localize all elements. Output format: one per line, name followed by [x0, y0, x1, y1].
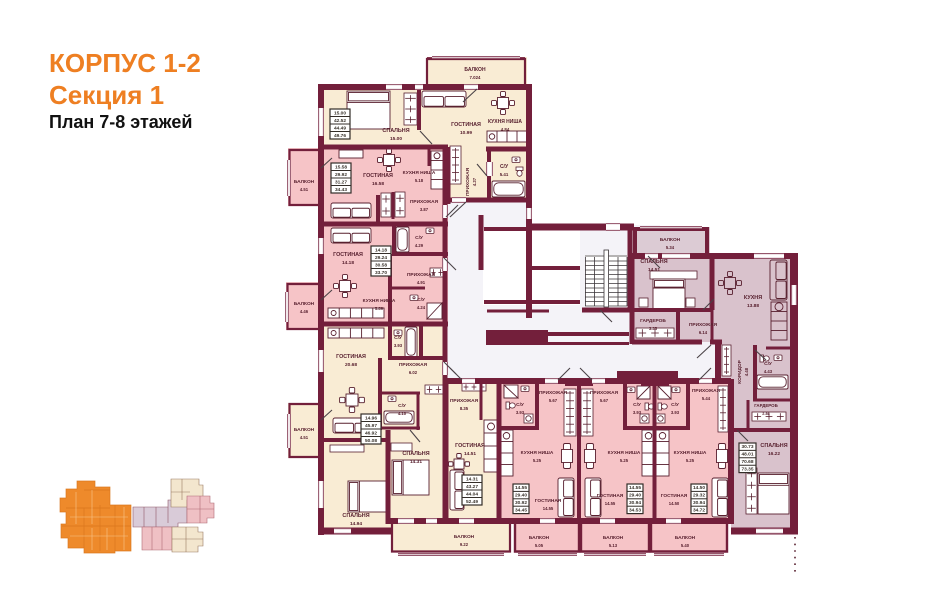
svg-text:5.67: 5.67: [549, 398, 558, 403]
svg-text:4.48: 4.48: [744, 367, 749, 376]
svg-text:30.73: 30.73: [741, 444, 753, 450]
svg-text:14.55: 14.55: [543, 506, 554, 511]
svg-text:КУХНЯ НИША: КУХНЯ НИША: [363, 298, 396, 304]
svg-text:14.31: 14.31: [466, 476, 478, 482]
svg-text:4.91: 4.91: [417, 280, 426, 285]
svg-text:5.41: 5.41: [500, 172, 509, 177]
svg-text:ГАРДЕРОБ: ГАРДЕРОБ: [754, 403, 778, 408]
svg-text:49.76: 49.76: [334, 133, 346, 139]
svg-text:14.55: 14.55: [515, 485, 527, 491]
svg-text:14.18: 14.18: [375, 247, 387, 253]
svg-text:5.25: 5.25: [533, 458, 542, 463]
svg-text:5.18: 5.18: [415, 178, 424, 183]
svg-text:3.93: 3.93: [633, 410, 642, 415]
svg-text:34.53: 34.53: [629, 507, 641, 513]
svg-text:ПРИХОЖАЯ: ПРИХОЖАЯ: [410, 199, 439, 205]
svg-text:13.88: 13.88: [747, 303, 759, 309]
svg-text:БАЛКОН: БАЛКОН: [294, 427, 315, 433]
svg-text:ПРИХОЖАЯ: ПРИХОЖАЯ: [407, 272, 436, 278]
svg-text:5.05: 5.05: [535, 543, 544, 548]
svg-text:С/У: С/У: [516, 402, 525, 408]
svg-text:34.43: 34.43: [335, 187, 347, 193]
svg-text:45.97: 45.97: [365, 423, 377, 429]
svg-text:43.27: 43.27: [466, 484, 478, 490]
svg-text:СПАЛЬНЯ: СПАЛЬНЯ: [382, 128, 409, 134]
svg-text:29.40: 29.40: [629, 493, 641, 499]
svg-text:БАЛКОН: БАЛКОН: [675, 535, 696, 541]
svg-text:4.43: 4.43: [764, 369, 773, 374]
svg-text:4.29: 4.29: [415, 243, 424, 248]
svg-text:3.35: 3.35: [649, 326, 658, 331]
svg-text:8.35: 8.35: [460, 406, 469, 411]
svg-text:7.024: 7.024: [470, 75, 482, 80]
svg-text:ПРИХОЖАЯ: ПРИХОЖАЯ: [539, 390, 568, 396]
svg-text:КУХНЯ НИША: КУХНЯ НИША: [674, 450, 707, 456]
svg-text:70.68: 70.68: [741, 459, 753, 465]
svg-text:КУХНЯ НИША: КУХНЯ НИША: [488, 119, 522, 125]
svg-text:ГОСТИНАЯ: ГОСТИНАЯ: [363, 173, 393, 179]
svg-text:14.55: 14.55: [605, 501, 616, 506]
svg-text:44.49: 44.49: [334, 125, 346, 131]
svg-text:16.22: 16.22: [768, 451, 780, 457]
svg-text:3.93: 3.93: [516, 410, 525, 415]
svg-text:СПАЛЬНЯ: СПАЛЬНЯ: [640, 259, 667, 265]
svg-text:50.08: 50.08: [365, 438, 377, 444]
svg-text:10.99: 10.99: [460, 130, 472, 136]
svg-text:СПАЛЬНЯ: СПАЛЬНЯ: [760, 443, 787, 449]
svg-text:46.92: 46.92: [365, 430, 377, 436]
svg-text:КОРИДОР: КОРИДОР: [737, 359, 743, 383]
svg-text:14.55: 14.55: [629, 485, 641, 491]
svg-text:ПРИХОЖАЯ: ПРИХОЖАЯ: [465, 167, 471, 196]
svg-text:С/У: С/У: [398, 403, 407, 409]
svg-text:ГОСТИНАЯ: ГОСТИНАЯ: [661, 493, 688, 499]
svg-text:КУХНЯ НИША: КУХНЯ НИША: [608, 450, 641, 456]
svg-text:5.25: 5.25: [686, 458, 695, 463]
svg-text:30.58: 30.58: [375, 262, 387, 268]
svg-text:4.51: 4.51: [300, 435, 309, 440]
svg-text:14.31: 14.31: [410, 459, 422, 465]
svg-text:БАЛКОН: БАЛКОН: [660, 237, 681, 243]
svg-text:ГАРДЕРОБ: ГАРДЕРОБ: [640, 318, 666, 324]
svg-text:С/У: С/У: [417, 297, 426, 303]
svg-text:4.51: 4.51: [300, 187, 309, 192]
svg-text:КУХНЯ НИША: КУХНЯ НИША: [521, 450, 554, 456]
svg-text:БАЛКОН: БАЛКОН: [464, 67, 486, 73]
svg-text:ПРИХОЖАЯ: ПРИХОЖАЯ: [399, 362, 428, 368]
svg-text:48.01: 48.01: [741, 452, 753, 458]
svg-text:14.96: 14.96: [365, 415, 377, 421]
svg-text:КУХНЯ: КУХНЯ: [744, 295, 762, 301]
svg-text:ПРИХОЖАЯ: ПРИХОЖАЯ: [450, 398, 479, 404]
svg-text:30.92: 30.92: [515, 500, 527, 506]
svg-text:3.93: 3.93: [394, 343, 403, 348]
svg-text:3.93: 3.93: [671, 410, 680, 415]
svg-text:29.32: 29.32: [693, 493, 705, 499]
svg-text:2.86: 2.86: [762, 412, 769, 416]
svg-text:БАЛКОН: БАЛКОН: [294, 301, 315, 307]
svg-text:ГОСТИНАЯ: ГОСТИНАЯ: [451, 122, 481, 128]
svg-text:15.00: 15.00: [334, 110, 346, 116]
svg-text:БАЛКОН: БАЛКОН: [603, 535, 624, 541]
svg-text:4.24: 4.24: [417, 305, 426, 310]
svg-text:С/У: С/У: [394, 335, 403, 341]
svg-text:С/У: С/У: [633, 402, 642, 408]
svg-text:С/У: С/У: [415, 235, 424, 241]
svg-text:СПАЛЬНЯ: СПАЛЬНЯ: [402, 451, 429, 457]
svg-text:БАЛКОН: БАЛКОН: [294, 179, 315, 185]
svg-text:42.52: 42.52: [334, 118, 346, 124]
svg-text:14.51: 14.51: [464, 451, 476, 457]
svg-text:14.51: 14.51: [648, 267, 660, 273]
svg-text:44.04: 44.04: [466, 491, 478, 497]
svg-text:4.84: 4.84: [501, 127, 510, 132]
svg-text:5.34: 5.34: [666, 245, 675, 250]
svg-text:КУХНЯ НИША: КУХНЯ НИША: [403, 170, 436, 176]
svg-text:ГОСТИНАЯ: ГОСТИНАЯ: [333, 252, 363, 258]
svg-text:ПРИХОЖАЯ: ПРИХОЖАЯ: [590, 390, 619, 396]
svg-text:4.37: 4.37: [472, 177, 477, 186]
svg-text:30.94: 30.94: [693, 500, 705, 506]
svg-text:5.40: 5.40: [681, 543, 690, 548]
svg-text:14.94: 14.94: [350, 521, 362, 527]
svg-text:С/У: С/У: [764, 361, 773, 367]
svg-text:6.02: 6.02: [409, 370, 418, 375]
svg-text:14.18: 14.18: [342, 260, 354, 266]
svg-text:СПАЛЬНЯ: СПАЛЬНЯ: [342, 513, 369, 519]
svg-text:ГОСТИНАЯ: ГОСТИНАЯ: [336, 354, 366, 360]
svg-text:33.70: 33.70: [375, 270, 387, 276]
svg-text:3.87: 3.87: [420, 207, 429, 212]
svg-text:С/У: С/У: [671, 402, 680, 408]
svg-text:4.10: 4.10: [398, 411, 407, 416]
svg-text:34.45: 34.45: [515, 507, 527, 513]
svg-text:5.89: 5.89: [375, 306, 384, 311]
svg-text:16.58: 16.58: [372, 181, 384, 187]
svg-text:15.58: 15.58: [335, 164, 347, 170]
svg-text:ПРИХОЖАЯ: ПРИХОЖАЯ: [692, 388, 721, 394]
svg-text:5.25: 5.25: [620, 458, 629, 463]
svg-text:52.49: 52.49: [466, 499, 478, 505]
svg-text:34.72: 34.72: [693, 507, 705, 513]
svg-text:ГОСТИНАЯ: ГОСТИНАЯ: [597, 493, 624, 499]
svg-text:БАЛКОН: БАЛКОН: [454, 534, 475, 540]
svg-text:БАЛКОН: БАЛКОН: [529, 535, 550, 541]
svg-text:6.14: 6.14: [699, 330, 708, 335]
svg-text:29.92: 29.92: [335, 172, 347, 178]
svg-text:4.46: 4.46: [300, 309, 309, 314]
svg-text:15.00: 15.00: [390, 136, 402, 142]
svg-text:ГОСТИНАЯ: ГОСТИНАЯ: [455, 443, 485, 449]
svg-text:29.40: 29.40: [515, 493, 527, 499]
svg-text:ГОСТИНАЯ: ГОСТИНАЯ: [535, 498, 562, 504]
svg-text:73.35: 73.35: [741, 466, 753, 472]
svg-text:14.50: 14.50: [669, 501, 680, 506]
svg-text:20.68: 20.68: [345, 362, 357, 368]
svg-text:30.94: 30.94: [629, 500, 641, 506]
svg-text:С/У: С/У: [500, 164, 509, 170]
svg-text:14.50: 14.50: [693, 485, 705, 491]
svg-text:5.13: 5.13: [609, 543, 618, 548]
svg-text:5.67: 5.67: [600, 398, 609, 403]
svg-text:29.24: 29.24: [375, 255, 387, 261]
svg-text:31.27: 31.27: [335, 179, 347, 185]
svg-text:5.44: 5.44: [702, 396, 711, 401]
svg-text:9.22: 9.22: [460, 542, 469, 547]
svg-text:ПРИХОЖАЯ: ПРИХОЖАЯ: [689, 322, 718, 328]
